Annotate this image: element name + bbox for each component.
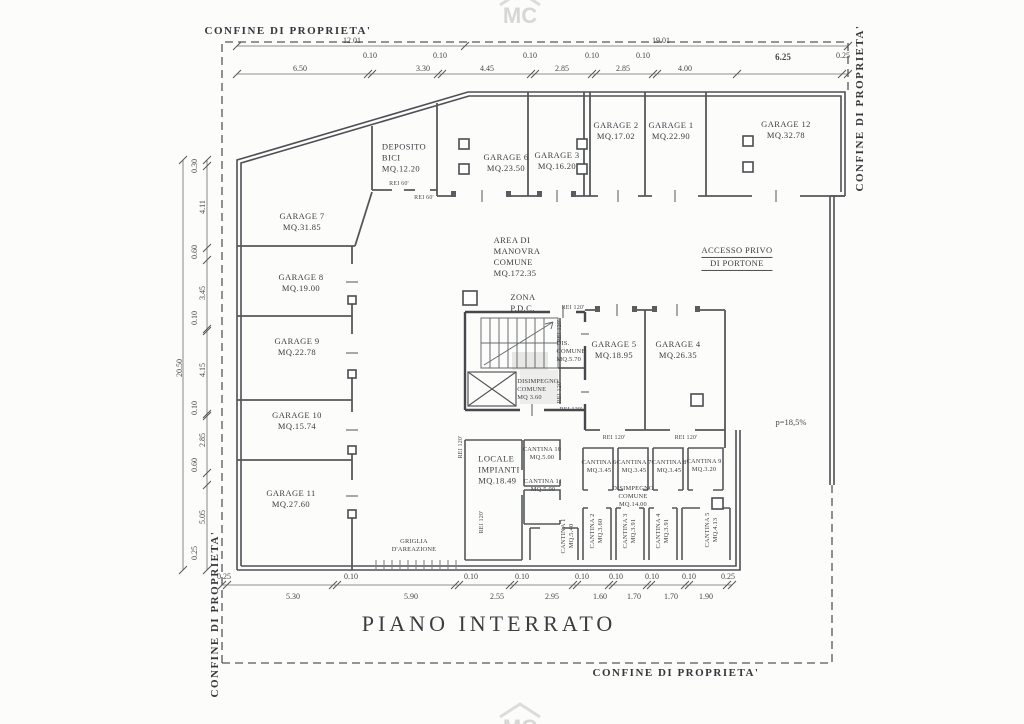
dim-text: 0.10 [190, 311, 199, 325]
dim-text: 0.10 [636, 51, 650, 60]
dim-text: 1.60 [593, 592, 607, 601]
dim-text: 2.85 [616, 64, 630, 73]
dim-text: 0.10 [645, 572, 659, 581]
dim-text: 4.15 [198, 363, 207, 377]
dim-text: 0.10 [575, 572, 589, 581]
label-rei60: REI 60' [414, 195, 434, 201]
room-label-garage-7: GARAGE 7MQ.31.85 [280, 211, 325, 233]
watermark-text: MC [503, 3, 537, 28]
boundary-label-right: CONFINE DI PROPRIETA' [854, 25, 866, 192]
room-label-garage-4: GARAGE 4MQ.26.35 [656, 339, 701, 361]
room-label-cantina-1: CANTINA 1MQ.5.40 [560, 519, 576, 554]
dim-text: 2.95 [545, 592, 559, 601]
dim-text: 0.60 [190, 458, 199, 472]
room-label-cantina-4: CANTINA 4MQ.3.91 [655, 514, 671, 549]
dim-text: 0.60 [190, 245, 199, 259]
dim-text: 2.85 [198, 433, 207, 447]
label-rei120: REI 120' [560, 407, 583, 413]
dim-text: 0.25 [190, 546, 199, 560]
dim-text: 5.30 [286, 592, 300, 601]
room-label-disimpegno-grande: DISIMPEGNOCOMUNEMQ.14.00 [612, 485, 653, 509]
dim-text: 0.10 [433, 51, 447, 60]
room-label-cantina-3: CANTINA 3MQ.3.91 [622, 514, 638, 549]
mc-logo-watermark: MC [488, 0, 552, 33]
room-label-garage-8: GARAGE 8MQ.19.00 [279, 272, 324, 294]
label-rei120: REI 120' [479, 511, 485, 534]
dim-text: 1.90 [699, 592, 713, 601]
dim-text: 0.10 [344, 572, 358, 581]
room-label-garage-11: GARAGE 11MQ.27.60 [266, 488, 315, 510]
room-label-locale-impianti: LOCALEIMPIANTIMQ.18.49 [478, 453, 519, 486]
room-label-garage-5: GARAGE 5MQ.18.95 [592, 339, 637, 361]
label-griglia-areazione: GRIGLIAD'AREAZIONE [392, 538, 437, 554]
elevator-shaft [468, 372, 516, 406]
dim-text: 2.85 [555, 64, 569, 73]
dim-text: 6.50 [293, 64, 307, 73]
room-label-disimpegno-comune: DISIMPEGNOCOMUNEMQ 3.60 [517, 378, 558, 402]
room-label-garage-2: GARAGE 2MQ.17.02 [594, 120, 639, 142]
room-label-cantina-7: CANTINA 7MQ.3.45 [617, 459, 652, 475]
dim-text: 0.10 [190, 401, 199, 415]
room-label-garage-3: GARAGE 3MQ.16.20 [535, 150, 580, 172]
dim-text: 0.10 [515, 572, 529, 581]
dim-text: 0.25 [836, 51, 850, 60]
dim-text: 5.05 [198, 510, 207, 524]
label-rei60: REI 60' [389, 181, 409, 187]
dim-text: 0.10 [609, 572, 623, 581]
label-rei120: REI 120' [603, 435, 626, 441]
room-label-garage-12: GARAGE 12MQ.32.78 [761, 119, 811, 141]
room-label-cantina-8: CANTINA 8MQ.3.45 [652, 459, 687, 475]
ventilation-grille [376, 560, 456, 570]
room-label-garage-6: GARAGE 6MQ.23.50 [484, 152, 529, 174]
room-label-cantina-9: CANTINA 9MQ.3.20 [687, 458, 722, 474]
boundary-label-bottom: CONFINE DI PROPRIETA' [593, 667, 760, 679]
label-accesso-privo: ACCESSO PRIVODI PORTONE [701, 245, 772, 271]
dim-text: 12.01 [343, 36, 361, 45]
label-rei120: REI 120' [557, 381, 563, 404]
dim-text: 0.10 [363, 51, 377, 60]
room-label-zona-pdc: ZONAP.D.C. [510, 292, 535, 314]
dim-text: 0.30 [190, 159, 199, 173]
dim-text: 3.30 [416, 64, 430, 73]
boundary-label-left: CONFINE DI PROPRIETA' [209, 531, 221, 698]
room-label-garage-10: GARAGE 10MQ.15.74 [272, 410, 322, 432]
room-label-cantina-6: CANTINA 6MQ.3.45 [582, 459, 617, 475]
room-label-cantina-5: CANTINA 5MQ.4.13 [704, 513, 720, 548]
label-rei120: REI 120' [557, 320, 563, 343]
room-label-cantina-10: CANTINA 10MQ.5.00 [523, 446, 561, 462]
dim-text: 0.10 [682, 572, 696, 581]
dim-text: 1.70 [664, 592, 678, 601]
dim-text: 20.50 [175, 359, 184, 377]
label-ramp-slope: p=18,5% [776, 417, 807, 427]
room-label-dis-comune: DIS.COMUNEMQ.5.70 [557, 340, 586, 364]
dim-text: 19.01 [652, 36, 670, 45]
dim-text: 0.10 [523, 51, 537, 60]
dim-text: 3.45 [198, 286, 207, 300]
dim-text: 5.90 [404, 592, 418, 601]
room-label-cantina-2: CANTINA 2MQ.3.60 [589, 514, 605, 549]
label-rei120: REI 120' [675, 435, 698, 441]
dim-text: 4.45 [480, 64, 494, 73]
garage-block-walls [585, 304, 725, 448]
page-title: PIANO INTERRATO [362, 611, 617, 637]
label-rei120: REI 120' [458, 436, 464, 459]
room-label-garage-9: GARAGE 9MQ.22.78 [275, 336, 320, 358]
label-rei120: REI 120' [562, 305, 585, 311]
dim-text: 2.55 [490, 592, 504, 601]
boundary-label-top: CONFINE DI PROPRIETA' [205, 25, 372, 37]
dim-text: 0.10 [464, 572, 478, 581]
room-label-deposito-bici: DEPOSITOBICIMQ.12.20 [382, 141, 426, 174]
room-label-cantina-11: CANTINA 11MQ.5.00 [524, 478, 562, 494]
dim-text: 1.70 [627, 592, 641, 601]
floor-plan-page: 12.01 19.01 6.50 0.10 3.30 0.10 4.45 0.1… [0, 0, 1024, 724]
mc-logo-watermark: MC [488, 699, 552, 724]
door-jambs [451, 191, 700, 312]
room-label-garage-1: GARAGE 1MQ.22.90 [649, 120, 694, 142]
dim-text: 6.25 [775, 52, 791, 62]
dim-text: 4.11 [198, 200, 207, 214]
top-row-walls [372, 92, 845, 202]
watermark-text: MC [503, 715, 537, 724]
room-label-area-manovra: AREA DIMANOVRACOMUNEMQ.172.35 [494, 235, 541, 279]
dim-text: 4.00 [678, 64, 692, 73]
dim-text: 0.25 [721, 572, 735, 581]
dim-text: 0.10 [585, 51, 599, 60]
